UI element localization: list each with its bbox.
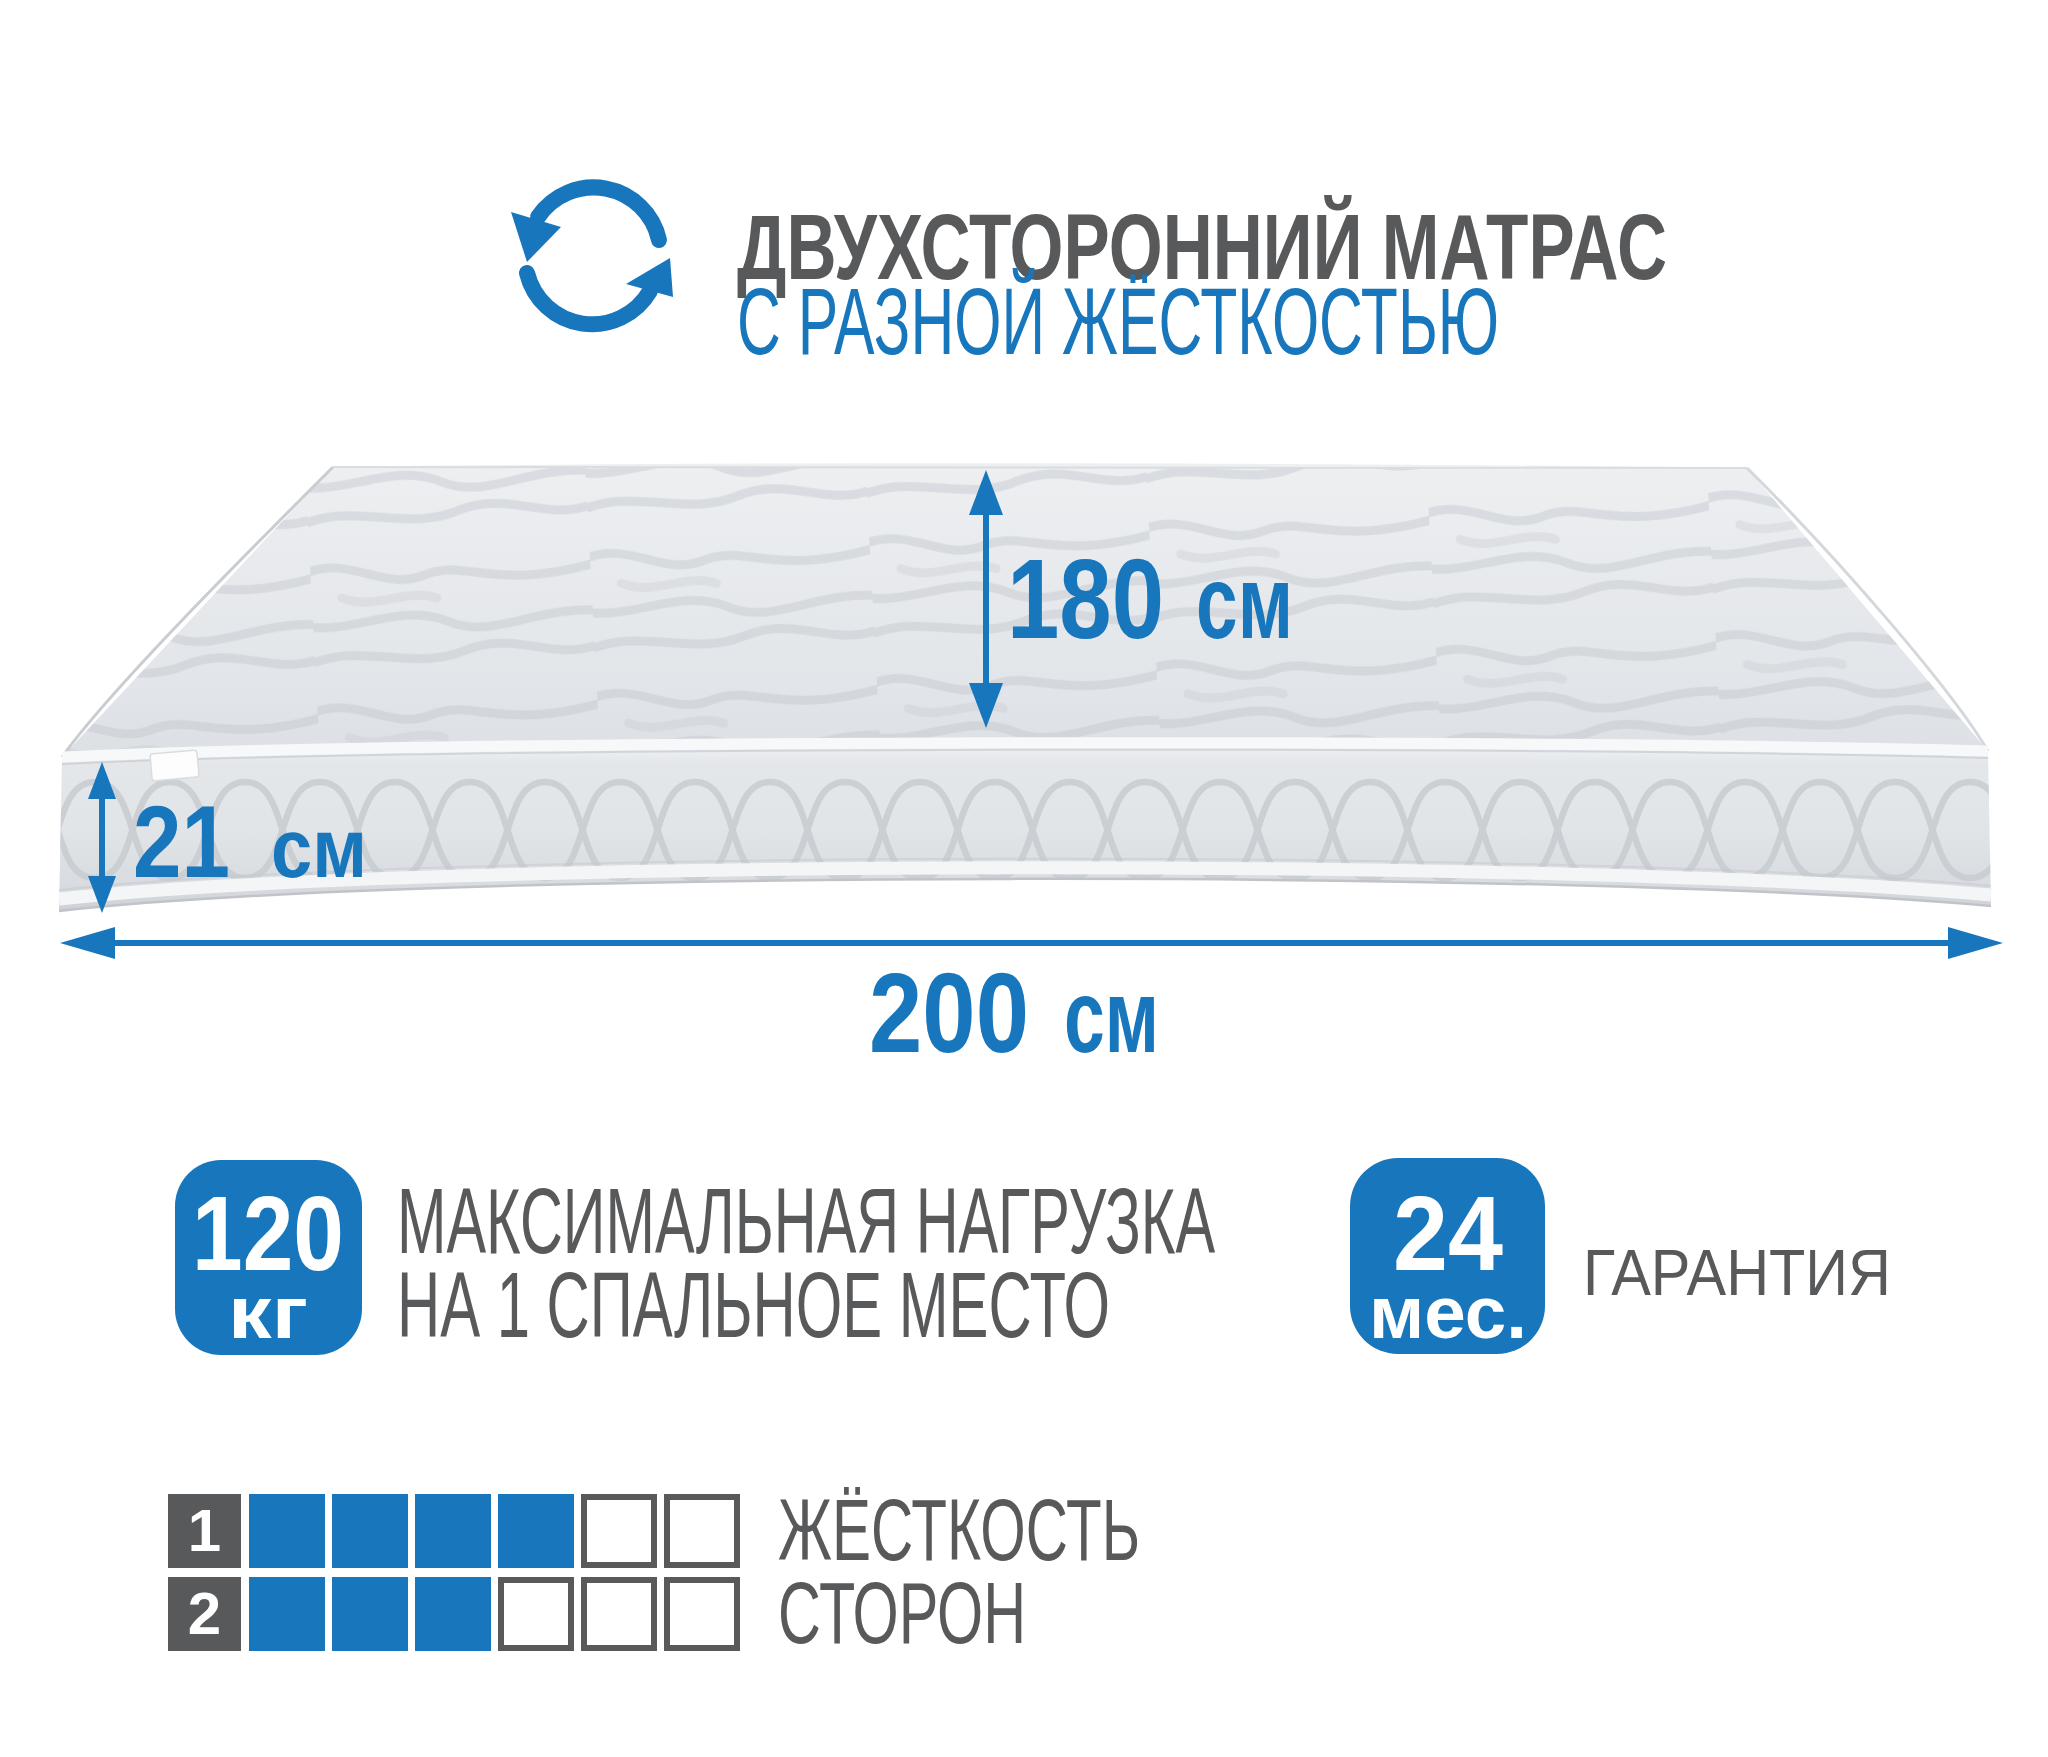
firmness-filled-square (415, 1494, 491, 1568)
firmness-empty-square (584, 1497, 654, 1565)
firmness-label-line2: СТОРОН (778, 1563, 1026, 1662)
firmness-filled-square (249, 1494, 325, 1568)
header: ДВУХСТОРОННИЙ МАТРАС С РАЗНОЙ ЖЁСТКОСТЬЮ (511, 187, 1667, 374)
firmness-empty-square (584, 1580, 654, 1648)
max-load-badge-unit: кг (228, 1271, 308, 1354)
width-dimension-unit: см (1196, 545, 1293, 660)
firmness-filled-square (415, 1577, 491, 1651)
max-load-feature: 120 кг МАКСИМАЛЬНАЯ НАГРУЗКА НА 1 СПАЛЬН… (175, 1160, 1215, 1356)
firmness-empty-square (667, 1497, 737, 1565)
infographic-canvas: ДВУХСТОРОННИЙ МАТРАС С РАЗНОЙ ЖЁСТКОСТЬЮ… (0, 0, 2048, 1757)
firmness-filled-square (498, 1494, 574, 1568)
height-dimension-unit: см (271, 802, 367, 895)
page-subtitle: С РАЗНОЙ ЖЁСТКОСТЬЮ (737, 268, 1499, 374)
firmness-filled-square (249, 1577, 325, 1651)
rotate-arrows-icon (511, 187, 673, 324)
mattress-product-infographic: ДВУХСТОРОННИЙ МАТРАС С РАЗНОЙ ЖЁСТКОСТЬЮ… (0, 0, 2048, 1757)
width-dimension-value: 180 (1007, 535, 1164, 662)
length-dimension-value: 200 (869, 949, 1029, 1076)
height-dimension-value: 21 (133, 785, 230, 899)
mattress-back-edge (333, 467, 1747, 468)
mattress-label-tag (150, 750, 199, 781)
firmness-side-number: 2 (188, 1580, 221, 1647)
firmness-empty-square (501, 1580, 571, 1648)
length-dimension-unit: см (1064, 959, 1159, 1074)
length-dimension: 200 см (60, 927, 2003, 1076)
warranty-feature: 24 мес. ГАРАНТИЯ (1350, 1158, 1891, 1354)
firmness-filled-square (332, 1494, 408, 1568)
warranty-badge-unit: мес. (1369, 1271, 1527, 1354)
warranty-label: ГАРАНТИЯ (1583, 1237, 1891, 1309)
firmness-scale: 12 (168, 1494, 737, 1651)
arrow-right-head (1948, 927, 2003, 959)
max-load-label-line2: НА 1 СПАЛЬНОЕ МЕСТО (397, 1254, 1110, 1356)
firmness-empty-square (667, 1580, 737, 1648)
firmness-side-number: 1 (188, 1497, 221, 1564)
firmness-filled-square (332, 1577, 408, 1651)
arrow-left-head (60, 927, 115, 959)
